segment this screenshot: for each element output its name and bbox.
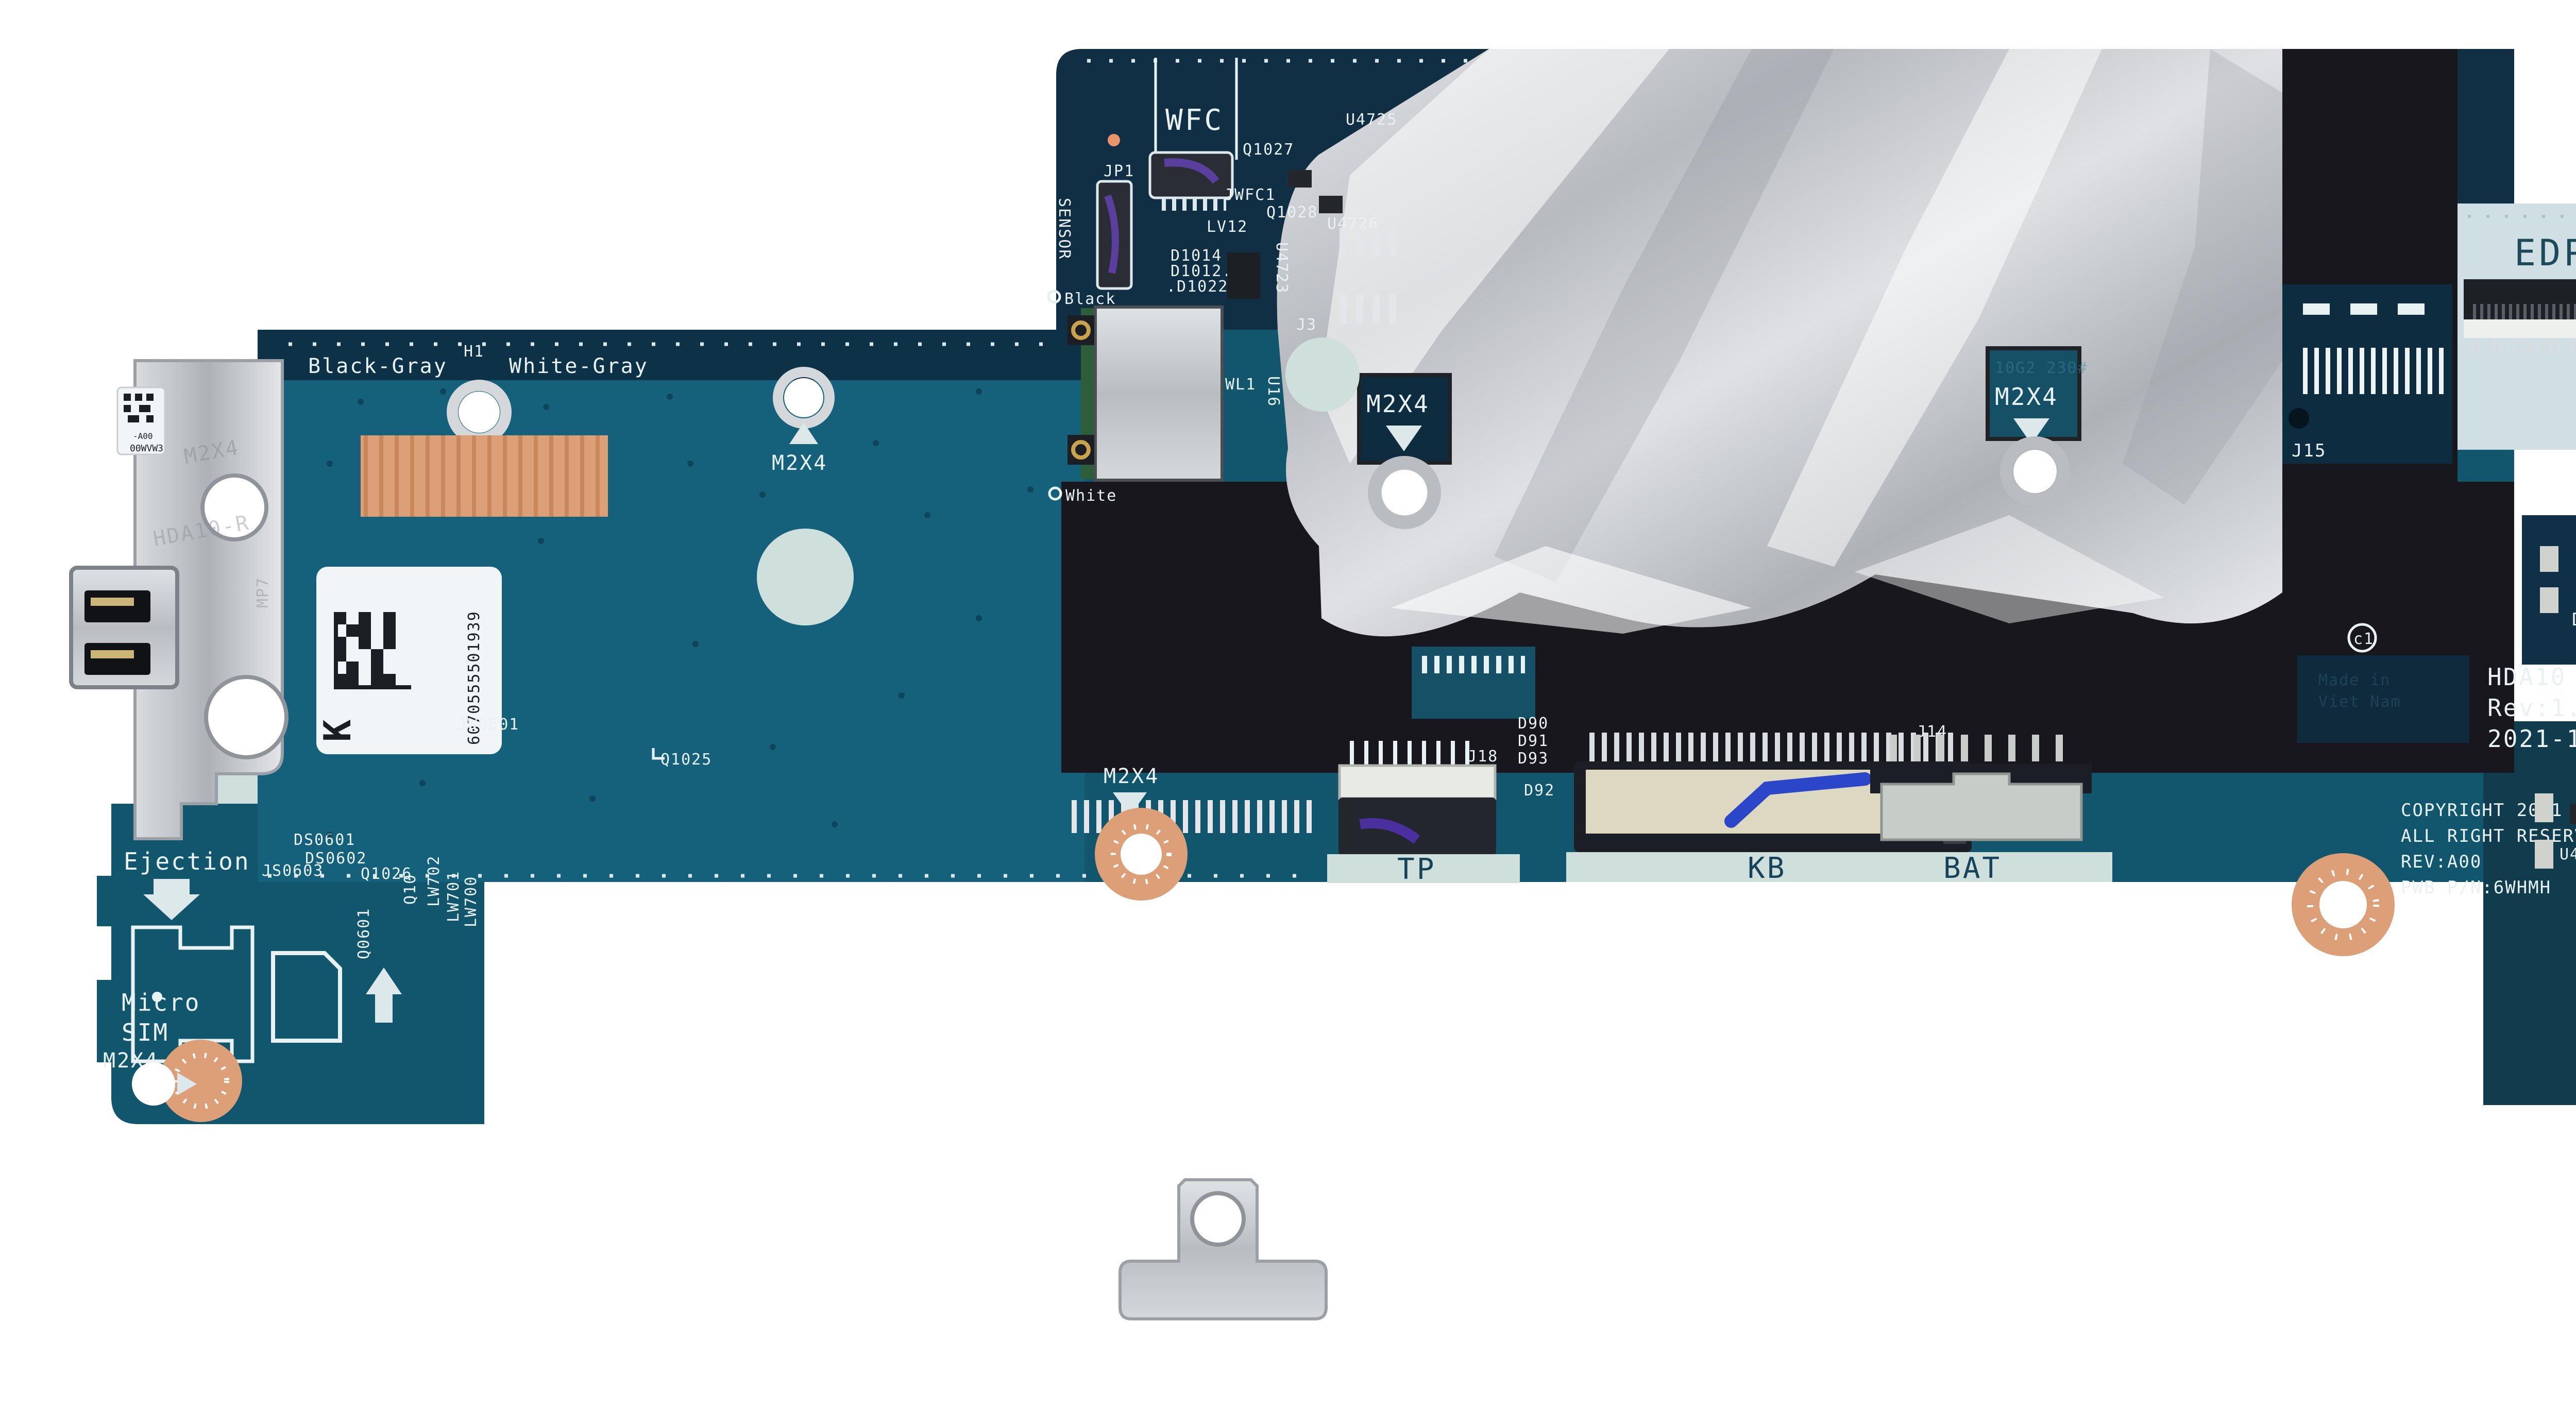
part-line2: Rev:1.0(A00) — [2487, 694, 2576, 722]
white-ant-label: White — [1065, 487, 1117, 505]
d90-label: D90 — [1518, 715, 1549, 733]
edp-connector — [2464, 279, 2576, 346]
cover-window-tp-area — [1412, 647, 1535, 719]
lw700-label: LW700 — [462, 876, 480, 927]
wfc-label: WFC — [1165, 104, 1224, 137]
sticker-line2: -A00 — [133, 431, 153, 441]
m2x4-label: M2X4 — [1995, 383, 2058, 411]
d93-label: D93 — [1518, 750, 1549, 768]
u4726-label: U4726 — [1327, 215, 1379, 233]
faint-code: 10G2 230# — [1995, 359, 2088, 377]
d91-label: D91 — [1518, 732, 1549, 750]
copyright-line4: PWB P/N:6WHMH — [2401, 877, 2551, 898]
black-ant-label: Black — [1064, 290, 1116, 308]
lw701-label: LW701 — [445, 871, 463, 922]
foil-window-m2x4-left: M2X4 — [1359, 375, 1450, 522]
q1028-label: Q1028 — [1266, 203, 1318, 222]
screw-hole — [2013, 450, 2057, 493]
kb-label: KB — [1748, 852, 1786, 885]
white-gray-label: White-Gray — [509, 354, 649, 378]
orange-dot — [1108, 134, 1120, 146]
j15-label: J15 — [2292, 440, 2326, 461]
jp1-label: JP1 — [1104, 162, 1134, 180]
part-line1: HDA10 LA-L564P — [2487, 663, 2576, 691]
h1-label: H1 — [464, 343, 484, 361]
j15-connector-window: J15 — [2282, 284, 2452, 464]
wl1-label: WL1 — [1225, 376, 1256, 394]
u16-label: U16 — [1264, 376, 1282, 407]
black-gray-label: Black-Gray — [308, 354, 448, 378]
wfc-connector — [1150, 152, 1232, 198]
lv12-label: LV12 — [1207, 218, 1248, 236]
tp-connector: J18 TP — [1327, 748, 1520, 886]
copyright-line3: REV:A00 — [2401, 852, 2482, 872]
q1027-label: Q1027 — [1243, 141, 1294, 159]
q10-label: Q10 — [401, 874, 419, 905]
u4-label: U4 — [2560, 845, 2576, 863]
d100-label: D100 — [2572, 609, 2576, 630]
jw0601-label: JW0601 — [457, 716, 519, 734]
u4723-label: U4723 — [1273, 242, 1291, 294]
tp-label: TP — [1397, 853, 1436, 886]
m2x4-top-label: M2X4 — [772, 451, 827, 475]
m2x4-label: M2X4 — [1366, 390, 1430, 418]
bat-label: BAT — [1943, 852, 2002, 885]
motherboard-photo: M2X4 10G2 230# M2X4 J15 EDP — [0, 0, 2576, 1425]
barcode-letter: K — [316, 719, 359, 742]
sensor-label: SENSOR — [1055, 198, 1073, 260]
foil-shield — [1277, 49, 2282, 636]
ejection-label: Ejection — [124, 847, 250, 875]
part-line3: 2021-11-23 — [2487, 725, 2576, 753]
bracket-sticker: 00WVW3 -A00 — [117, 387, 165, 454]
pale-circle-pad — [1285, 337, 1360, 412]
m2x4-mid-label: M2X4 — [1104, 765, 1159, 788]
service-label-line1: Made in — [2318, 671, 2391, 689]
screw-hole — [1382, 470, 1427, 515]
motherboard-drawing: M2X4 10G2 230# M2X4 J15 EDP — [0, 0, 2576, 1425]
u4725-label: U4725 — [1346, 111, 1397, 129]
copper-finger-pad — [361, 435, 608, 517]
q0601-label: Q0601 — [355, 908, 373, 959]
q1025-label: Q1025 — [660, 751, 712, 769]
service-label-line2: Viet Nam — [2318, 693, 2401, 711]
jwfc1-label: JWFC1 — [1224, 186, 1276, 204]
hole — [2289, 408, 2309, 429]
j18-label: J18 — [1467, 748, 1498, 766]
j3-label: J3 — [1296, 316, 1317, 334]
micro-label: Micro — [122, 989, 200, 1016]
ds0601-label: DS0601 — [294, 831, 355, 849]
d1022-label: .D1022 — [1166, 278, 1228, 296]
lw702-label: LW702 — [425, 855, 443, 907]
edp-label: EDP — [2514, 232, 2576, 274]
sticker-line1: 00WVW3 — [130, 443, 163, 454]
copper-screw-pad-bat — [2292, 853, 2395, 956]
embossed-mp7: MP7 — [254, 577, 272, 608]
d92-label: D92 — [1524, 782, 1555, 800]
screw-hole-h1 — [452, 385, 506, 439]
c1-mark: c1 — [2353, 630, 2374, 648]
usb-a-port-left — [71, 568, 177, 687]
ds0602-label: DS0602 — [305, 850, 367, 868]
sim-label: SIM — [122, 1019, 169, 1046]
pale-circle-pad — [757, 529, 854, 625]
